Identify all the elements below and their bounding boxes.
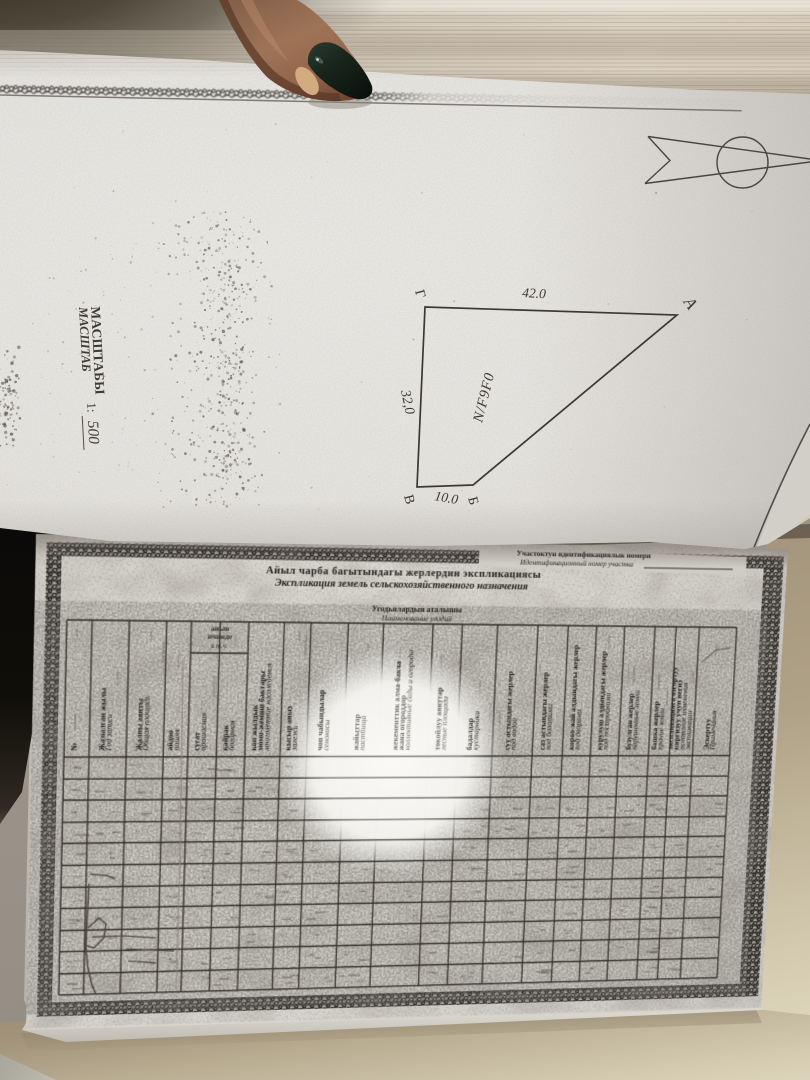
svg-text:Б: Б [464, 495, 481, 507]
svg-text:N/F9F0: N/F9F0 [470, 371, 498, 425]
svg-text:32,0: 32,0 [397, 388, 417, 416]
svg-text:А: А [679, 293, 701, 314]
svg-text:Год записи: Год записи [103, 714, 114, 752]
svg-text:Наименование угодий: Наименование угодий [380, 614, 452, 623]
svg-text:орошаемая: орошаемая [198, 713, 209, 751]
svg-text:Общая площадь: Общая площадь [140, 695, 151, 750]
svg-text:пашня: пашня [171, 729, 181, 751]
svg-text:под водой: под водой [508, 718, 518, 751]
svg-text:богарная: богарная [226, 720, 236, 750]
svg-text:ичинде: ичинде [208, 632, 233, 641]
svg-text:Угодьялардын аталышы: Угодьялардын аталышы [372, 604, 463, 614]
svg-text:10.0: 10.0 [433, 488, 459, 507]
svg-text:В: В [400, 493, 417, 506]
svg-text:Г: Г [411, 288, 428, 300]
svg-text:№: № [69, 743, 79, 751]
svg-text:в т.ч.: в т.ч. [211, 641, 228, 650]
svg-text:42.0: 42.0 [522, 285, 547, 301]
